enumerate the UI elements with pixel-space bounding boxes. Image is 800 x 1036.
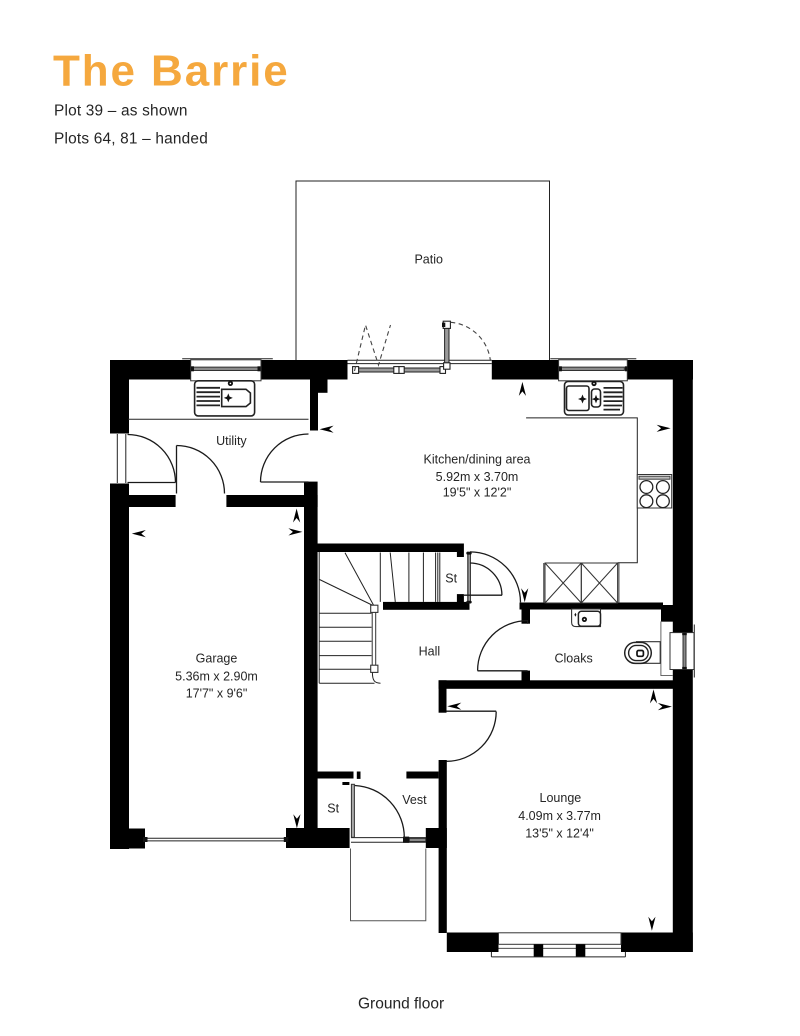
svg-text:Hall: Hall: [419, 645, 441, 659]
svg-text:Plot 39 – as shown: Plot 39 – as shown: [54, 103, 188, 120]
svg-text:5.92m x 3.70m: 5.92m x 3.70m: [436, 470, 519, 484]
svg-text:St: St: [327, 802, 339, 816]
svg-text:Utility: Utility: [216, 434, 247, 448]
svg-text:Garage: Garage: [196, 652, 238, 666]
svg-text:Plots 64, 81 – handed: Plots 64, 81 – handed: [54, 131, 208, 148]
svg-text:St: St: [445, 572, 457, 586]
svg-text:The Barrie: The Barrie: [53, 47, 290, 96]
svg-text:Kitchen/dining area: Kitchen/dining area: [423, 453, 530, 467]
svg-text:Ground floor: Ground floor: [358, 996, 444, 1013]
svg-text:4.09m x 3.77m: 4.09m x 3.77m: [518, 809, 601, 823]
svg-text:Patio: Patio: [414, 253, 443, 267]
svg-text:Cloaks: Cloaks: [554, 652, 592, 666]
svg-text:Lounge: Lounge: [540, 791, 582, 805]
svg-text:19'5" x 12'2": 19'5" x 12'2": [443, 485, 512, 499]
svg-text:13'5" x 12'4": 13'5" x 12'4": [525, 827, 594, 841]
svg-text:17'7" x 9'6": 17'7" x 9'6": [186, 687, 248, 701]
svg-text:Vest: Vest: [402, 793, 427, 807]
svg-text:5.36m x 2.90m: 5.36m x 2.90m: [175, 670, 258, 684]
